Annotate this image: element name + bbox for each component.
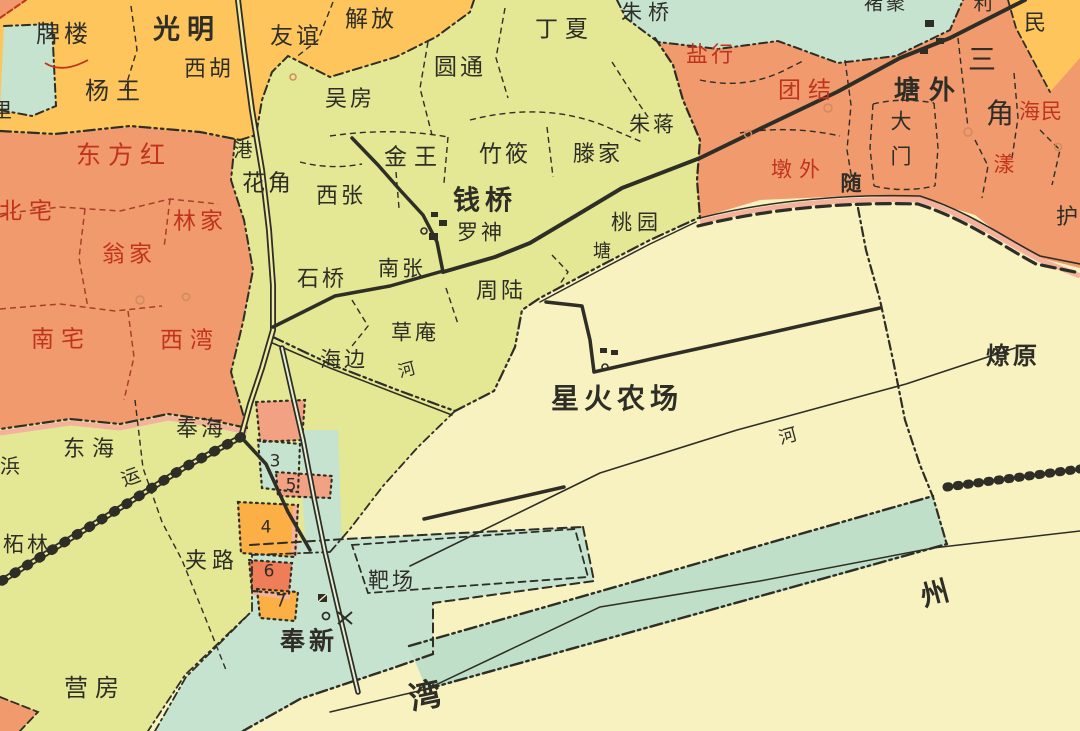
place-label-tang: 塘 bbox=[593, 243, 611, 261]
place-label-zhujiang: 朱蒋 bbox=[629, 115, 677, 136]
place-label-zhoulu: 周陆 bbox=[476, 281, 526, 303]
place-label-yingfang: 营房 bbox=[64, 676, 126, 700]
place-label-damen-da: 大 bbox=[891, 112, 912, 133]
place-label-xiwan: 西湾 bbox=[160, 330, 220, 353]
place-label-li-corner: 里 bbox=[0, 100, 12, 120]
place-label-gang: 港 bbox=[233, 142, 252, 161]
place-label-xizhang: 西张 bbox=[316, 186, 366, 208]
place-label-sanjiao-jiao: 角 bbox=[986, 100, 1014, 128]
region-orange-left bbox=[0, 127, 253, 429]
place-label-donghai: 东海 bbox=[63, 439, 121, 461]
place-label-dunwai: 墩外 bbox=[771, 160, 827, 181]
place-label-hu: 护 bbox=[1056, 207, 1078, 229]
place-label-linjia: 林家 bbox=[173, 211, 227, 234]
map-artwork bbox=[0, 0, 1080, 731]
place-label-youyi: 友谊 bbox=[270, 26, 322, 49]
place-label-beizhai: 北宅 bbox=[0, 201, 59, 224]
map-canvas[interactable]: 牌楼 光明 西胡 杨王 友谊 解放 吴房 圆通 丁夏 朱桥 港 花角 西张 金王… bbox=[0, 0, 1080, 731]
place-label-jinwang: 金王 bbox=[384, 147, 444, 170]
place-label-chuju: 褚聚 bbox=[864, 0, 908, 14]
place-label-haibian: 海边 bbox=[320, 350, 368, 371]
place-label-bang: 浜 bbox=[0, 456, 20, 476]
place-label-sanjiao-san: 三 bbox=[968, 46, 996, 74]
place-label-xinghuo-farm: 星火农场 bbox=[551, 385, 683, 413]
area-number-5: 5 bbox=[286, 478, 297, 495]
place-label-qianqiao: 钱桥 bbox=[453, 188, 517, 215]
place-label-pailou: 牌楼 bbox=[36, 22, 92, 46]
area-number-3: 3 bbox=[270, 454, 281, 471]
place-label-taoyuan: 桃园 bbox=[611, 213, 663, 234]
place-label-dingxia: 丁夏 bbox=[535, 19, 595, 42]
place-label-tuanjie: 团结 bbox=[778, 80, 838, 103]
region-fills bbox=[0, 0, 1080, 731]
place-label-wan: 湾 bbox=[406, 677, 444, 715]
place-label-bachang: 靶场 bbox=[368, 571, 416, 592]
place-label-luoshen: 罗神 bbox=[457, 223, 505, 244]
place-label-nanzhai: 南宅 bbox=[31, 329, 91, 352]
place-label-wengjia: 翁家 bbox=[102, 244, 156, 267]
place-label-fengxin: 奉新 bbox=[280, 629, 338, 654]
place-label-caoan: 草庵 bbox=[391, 323, 439, 344]
area-number-6: 6 bbox=[264, 564, 275, 581]
place-label-yanhang: 盐行 bbox=[686, 45, 736, 67]
place-label-xihu: 西胡 bbox=[184, 59, 234, 81]
place-label-haimin: 海民 bbox=[1019, 102, 1063, 123]
place-label-yangwang: 杨王 bbox=[85, 79, 147, 103]
place-label-yang: 漾 bbox=[994, 155, 1015, 176]
place-label-jialu: 夹路 bbox=[185, 551, 239, 573]
place-label-fenghai: 奉海 bbox=[176, 419, 226, 441]
place-label-sui: 随 bbox=[841, 174, 862, 195]
place-label-liaoyuan: 燎原 bbox=[986, 344, 1040, 368]
place-label-guangming: 光明 bbox=[153, 17, 221, 44]
place-label-tangwai: 塘外 bbox=[894, 78, 964, 104]
place-label-zhuxiao: 竹筱 bbox=[479, 144, 531, 167]
area-number-4: 4 bbox=[261, 520, 272, 537]
place-label-nanzhang: 南张 bbox=[378, 259, 426, 280]
place-label-min: 民 bbox=[1024, 13, 1046, 35]
place-label-yuantong: 圆通 bbox=[434, 57, 486, 80]
place-label-zhuqiao: 朱桥 bbox=[621, 3, 675, 24]
place-label-huajiao: 花角 bbox=[242, 173, 294, 196]
place-label-zhelin: 柘林 bbox=[3, 535, 51, 556]
place-label-jiefang: 解放 bbox=[345, 9, 397, 32]
place-label-shiqiao: 石桥 bbox=[297, 269, 347, 291]
place-label-tengjia: 滕家 bbox=[573, 144, 623, 166]
place-label-dongfanghong: 东方红 bbox=[76, 143, 172, 168]
area-number-7: 7 bbox=[276, 594, 287, 611]
place-label-damen-men: 门 bbox=[891, 147, 912, 168]
place-label-li: 利 bbox=[973, 0, 992, 14]
place-label-wufang: 吴房 bbox=[325, 89, 375, 111]
